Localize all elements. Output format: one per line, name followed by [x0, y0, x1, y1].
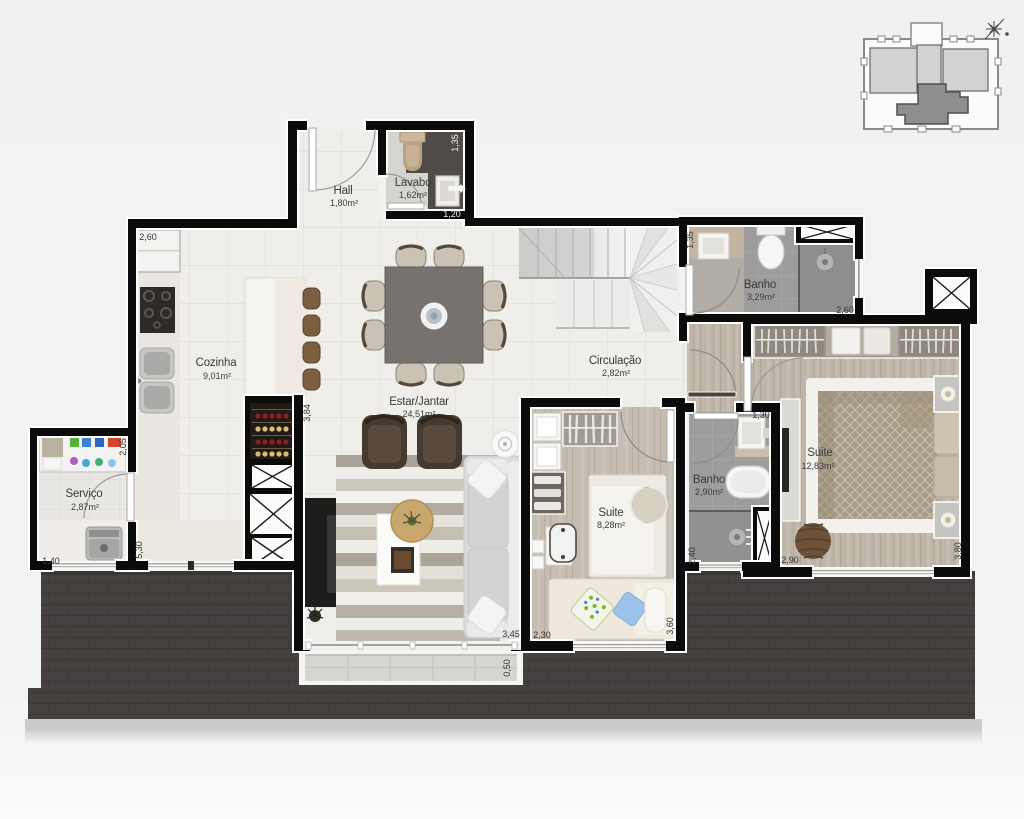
- svg-text:2,90: 2,90: [781, 555, 799, 565]
- svg-text:2,30: 2,30: [533, 630, 551, 640]
- svg-text:Circulação: Circulação: [589, 355, 641, 367]
- svg-text:2,60: 2,60: [139, 232, 157, 242]
- svg-text:3,60: 3,60: [665, 617, 675, 635]
- svg-text:5,30: 5,30: [134, 541, 144, 559]
- svg-text:Estar/Jantar: Estar/Jantar: [389, 396, 449, 408]
- svg-text:3,45: 3,45: [502, 629, 520, 639]
- svg-text:12,83m²: 12,83m²: [801, 461, 834, 471]
- svg-text:Banho: Banho: [744, 279, 776, 291]
- svg-text:1,80m²: 1,80m²: [330, 198, 358, 208]
- svg-text:2,82m²: 2,82m²: [602, 368, 630, 378]
- svg-text:Suite: Suite: [807, 447, 832, 459]
- svg-text:3,80: 3,80: [953, 542, 963, 560]
- svg-text:3,84: 3,84: [302, 404, 312, 422]
- svg-text:2,90m²: 2,90m²: [695, 487, 723, 497]
- svg-text:8,28m²: 8,28m²: [597, 520, 625, 530]
- svg-text:Hall: Hall: [333, 185, 352, 197]
- svg-text:1,62m²: 1,62m²: [399, 190, 427, 200]
- svg-text:9,01m²: 9,01m²: [203, 371, 231, 381]
- svg-text:Lavabo: Lavabo: [395, 177, 432, 189]
- svg-text:Banho: Banho: [693, 474, 725, 486]
- svg-text:2,60: 2,60: [836, 305, 854, 315]
- svg-text:Cozinha: Cozinha: [196, 357, 238, 369]
- svg-text:1,35: 1,35: [450, 134, 460, 152]
- svg-text:0,50: 0,50: [502, 659, 512, 677]
- svg-text:24,51m²: 24,51m²: [402, 409, 435, 419]
- svg-text:2,05: 2,05: [118, 438, 128, 456]
- svg-text:3,29m²: 3,29m²: [747, 292, 775, 302]
- svg-text:1,35: 1,35: [685, 231, 695, 249]
- svg-text:1,40: 1,40: [42, 556, 60, 566]
- svg-text:1,30: 1,30: [752, 410, 770, 420]
- svg-text:1,20: 1,20: [443, 209, 461, 219]
- svg-text:2,40: 2,40: [687, 547, 697, 565]
- svg-text:2,87m²: 2,87m²: [71, 502, 99, 512]
- svg-text:Serviço: Serviço: [66, 488, 103, 500]
- svg-text:Suite: Suite: [598, 507, 623, 519]
